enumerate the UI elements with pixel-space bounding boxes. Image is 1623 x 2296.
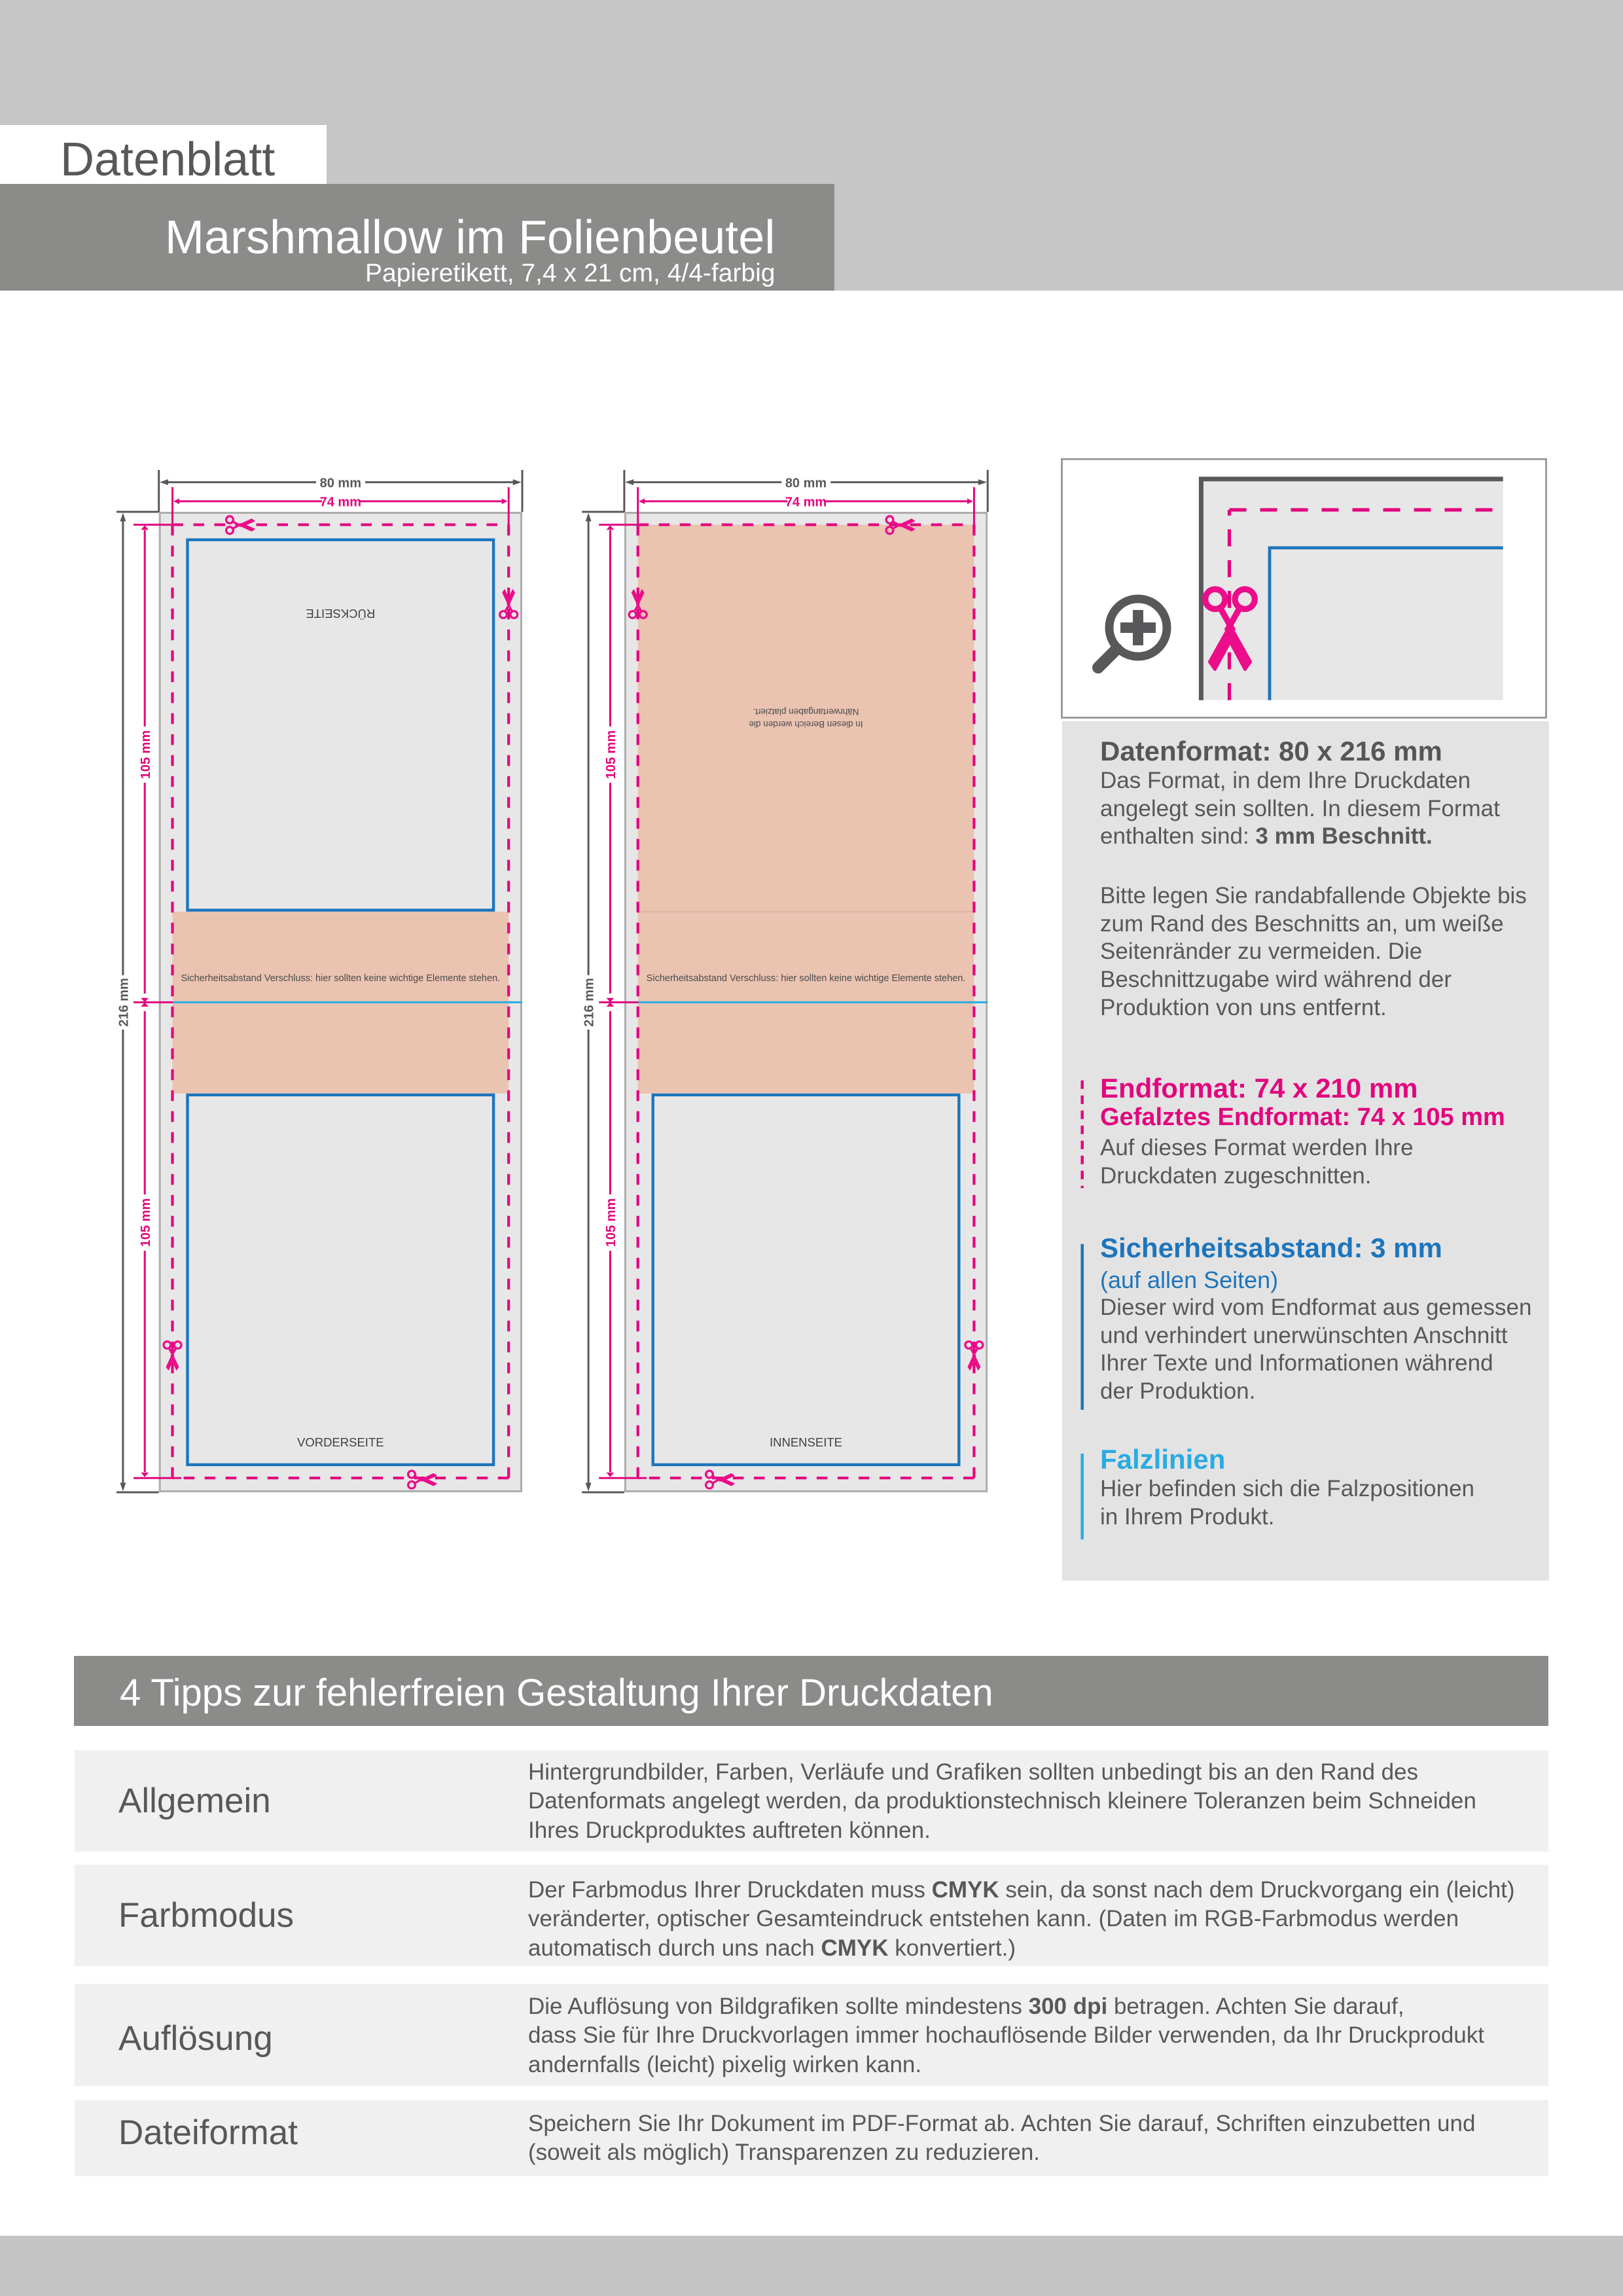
svg-text:Sicherheitsabstand Verschluss:: Sicherheitsabstand Verschluss: hier soll… [647,973,966,984]
svg-text:105 mm: 105 mm [139,730,153,780]
svg-text:RÜCKSEITE: RÜCKSEITE [306,607,375,620]
svg-text:105 mm: 105 mm [604,730,618,780]
svg-text:74 mm: 74 mm [785,495,827,510]
svg-text:105 mm: 105 mm [604,1198,618,1247]
svg-text:216 mm: 216 mm [582,978,597,1027]
svg-text:Nährwertangaben platziert.: Nährwertangaben platziert. [753,707,859,717]
svg-text:Sicherheitsabstand Verschluss:: Sicherheitsabstand Verschluss: hier soll… [181,973,500,984]
svg-text:105 mm: 105 mm [139,1198,153,1247]
svg-text:80 mm: 80 mm [320,476,361,491]
svg-text:VORDERSEITE: VORDERSEITE [297,1435,384,1449]
svg-text:In diesen Bereich werden die: In diesen Bereich werden die [749,719,863,729]
svg-text:INNENSEITE: INNENSEITE [770,1435,842,1449]
svg-text:216 mm: 216 mm [117,978,132,1027]
svg-text:80 mm: 80 mm [785,476,827,491]
svg-text:74 mm: 74 mm [320,495,361,510]
